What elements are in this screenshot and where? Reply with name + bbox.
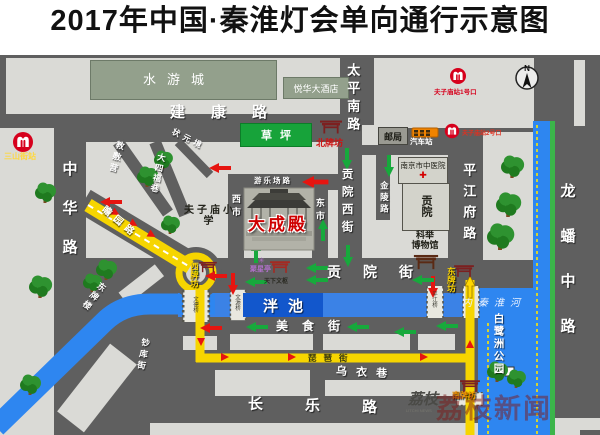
yuehua-hotel-label: 悦华大酒店 xyxy=(293,82,338,95)
school-label: 夫子庙小学 xyxy=(184,205,236,227)
dachengdian-label: 大成殿 xyxy=(248,216,308,235)
road-zhonghua: 中华路 xyxy=(60,161,77,291)
gongyuan-label: 贡院 xyxy=(418,188,434,224)
red-cross-icon: ✚ xyxy=(399,171,447,180)
page-title: 2017年中国·秦淮灯会单向通行示意图 xyxy=(0,6,600,38)
metro-sanshanjie-label: 三山街站 xyxy=(4,153,36,162)
wenshu-gate-icon xyxy=(270,261,290,273)
shuiyoucheng-label: 水游城 xyxy=(143,73,215,87)
road-jinling: 金陵路 xyxy=(379,181,388,221)
traffic-map-page: 2017年中国·秦淮灯会单向通行示意图 xyxy=(0,0,600,435)
bridge-wenyuan-label: 文源桥 xyxy=(234,294,240,320)
yuehua-hotel-box: 悦华大酒店 xyxy=(283,77,349,99)
metro-fuzimiao1-label: 夫子庙站1号口 xyxy=(434,89,477,96)
bus-station-icon xyxy=(412,128,438,137)
svg-text:N: N xyxy=(524,64,530,73)
metro-fuzimiao1-icon xyxy=(450,68,466,84)
juxingting-label: 聚星亭 xyxy=(250,266,271,274)
west-gate-label: 西牌坊 xyxy=(189,262,198,294)
road-jiankang: 建康路 xyxy=(170,105,293,122)
litchi-logo: 荔枝 xyxy=(408,391,438,408)
bridge-pingjiang-label: 平江桥 xyxy=(431,291,437,317)
road-taipingnan: 太平南路 xyxy=(345,63,359,143)
bailuzhou-park-label: 白鹭洲公园 xyxy=(492,313,504,383)
panchi-label: 泮池 xyxy=(253,295,313,316)
road-gongyuanjie: 贡院街 xyxy=(327,265,435,280)
panchi-box: 泮池 xyxy=(243,293,323,317)
road-pingjiangfu: 平江府路 xyxy=(461,163,475,258)
lawn-box: 草坪 xyxy=(240,123,312,147)
east-gate-icon xyxy=(454,265,474,277)
road-gongyuanxi: 贡院西街 xyxy=(340,168,353,250)
road-meishijie: 美食街 xyxy=(276,320,354,333)
road-youlechang: 游乐场路 xyxy=(254,177,292,185)
tianxiawenshu-label: 天下文枢 xyxy=(264,279,288,286)
road-pipajie: 琵琶街 xyxy=(308,354,355,363)
road-xishi: 西市 xyxy=(230,194,240,224)
road-longpan: 龙蟠中路 xyxy=(558,183,575,378)
litchi-watermark: 荔枝新闻 xyxy=(436,395,552,425)
north-gate-icon xyxy=(320,121,342,134)
bus-station-label: 汽车站 xyxy=(410,138,433,146)
star-icon: ✳ xyxy=(258,257,265,266)
hospital-box: 南京市中医院 ✚ xyxy=(398,157,448,184)
map-canvas: N 水游城 悦华大酒店 草坪 邮局 南京市中医院 ✚ 贡院 科举 博物馆 夫子庙… xyxy=(0,55,600,435)
keju-museum-label: 科举 博物馆 xyxy=(402,231,448,251)
road-dongshi: 东市 xyxy=(314,198,324,228)
litchi-caption: LITCHI NEWS xyxy=(406,409,432,413)
north-gate-label: 北牌坊 xyxy=(316,139,343,149)
shuiyoucheng-box: 水游城 xyxy=(90,60,277,100)
gongyuan-box: 贡院 xyxy=(402,183,450,231)
metro-fuzimiao2-icon xyxy=(445,124,459,138)
map-graphics: N xyxy=(0,55,600,435)
metro-fuzimiao2-label: 夫子庙站2号口 xyxy=(462,131,501,138)
inner-river-label: 内秦淮河 xyxy=(462,298,526,309)
bridge-wende-label: 文德桥 xyxy=(192,296,198,322)
post-office-box: 邮局 xyxy=(378,127,408,145)
metro-sanshanjie-icon xyxy=(13,132,33,152)
east-gate-label: 东牌坊 xyxy=(446,267,455,299)
